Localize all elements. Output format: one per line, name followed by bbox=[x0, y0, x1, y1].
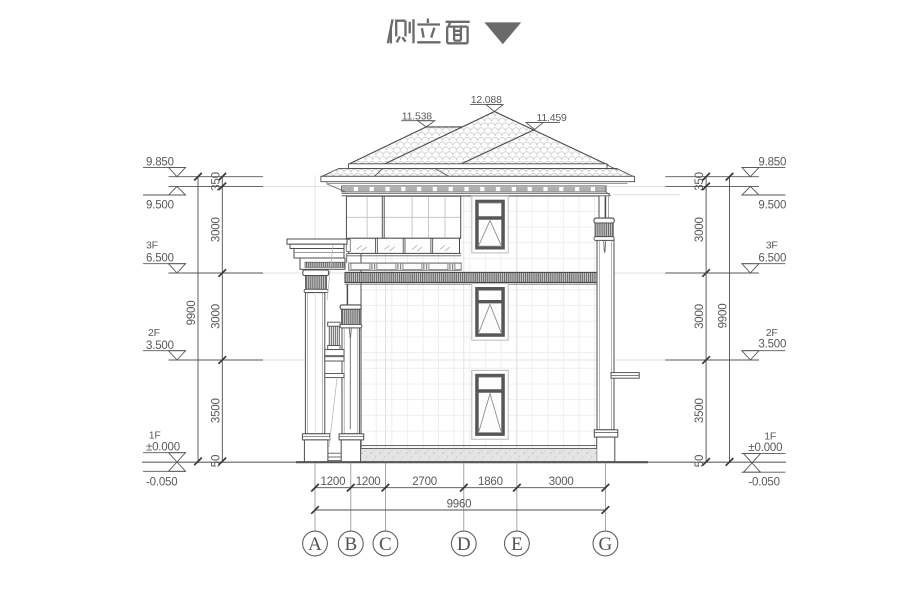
svg-text:2F: 2F bbox=[148, 327, 160, 339]
svg-text:G: G bbox=[599, 534, 613, 555]
svg-text:6.500: 6.500 bbox=[146, 253, 174, 265]
svg-text:1F: 1F bbox=[149, 429, 161, 441]
svg-text:9.850: 9.850 bbox=[758, 157, 786, 169]
svg-text:3000: 3000 bbox=[549, 476, 574, 488]
svg-text:±0.000: ±0.000 bbox=[748, 442, 782, 454]
svg-text:50: 50 bbox=[694, 455, 706, 467]
svg-text:9.500: 9.500 bbox=[146, 200, 174, 212]
svg-text:11.459: 11.459 bbox=[537, 112, 567, 124]
svg-text:C: C bbox=[379, 534, 392, 555]
svg-text:D: D bbox=[457, 534, 471, 555]
svg-text:50: 50 bbox=[210, 455, 222, 467]
svg-text:3000: 3000 bbox=[694, 217, 706, 242]
svg-text:350: 350 bbox=[210, 172, 222, 191]
svg-text:3.500: 3.500 bbox=[146, 340, 174, 352]
svg-text:3500: 3500 bbox=[694, 398, 706, 423]
svg-text:-0.050: -0.050 bbox=[146, 476, 177, 488]
svg-text:9.850: 9.850 bbox=[146, 157, 174, 169]
svg-text:1F: 1F bbox=[764, 430, 776, 442]
svg-text:12.088: 12.088 bbox=[471, 94, 502, 106]
svg-text:9.500: 9.500 bbox=[758, 200, 786, 212]
svg-text:3F: 3F bbox=[146, 240, 158, 252]
svg-text:3000: 3000 bbox=[694, 304, 706, 329]
svg-text:B: B bbox=[344, 534, 357, 555]
svg-text:9960: 9960 bbox=[447, 498, 472, 510]
svg-text:3000: 3000 bbox=[210, 304, 222, 329]
svg-text:3F: 3F bbox=[766, 240, 778, 252]
svg-text:11.538: 11.538 bbox=[402, 110, 432, 122]
svg-text:E: E bbox=[511, 534, 523, 555]
svg-text:-0.050: -0.050 bbox=[748, 477, 779, 489]
svg-text:9900: 9900 bbox=[717, 304, 729, 329]
svg-text:1200: 1200 bbox=[356, 476, 381, 488]
svg-text:2700: 2700 bbox=[412, 476, 437, 488]
svg-text:±0.000: ±0.000 bbox=[146, 441, 180, 453]
svg-text:3.500: 3.500 bbox=[758, 339, 786, 351]
svg-text:350: 350 bbox=[694, 172, 706, 191]
svg-text:6.500: 6.500 bbox=[758, 253, 786, 265]
svg-text:9900: 9900 bbox=[186, 301, 198, 326]
svg-text:2F: 2F bbox=[766, 327, 778, 339]
svg-text:3000: 3000 bbox=[210, 217, 222, 242]
svg-text:1860: 1860 bbox=[478, 476, 503, 488]
svg-text:3500: 3500 bbox=[210, 398, 222, 423]
svg-text:1200: 1200 bbox=[321, 476, 346, 488]
svg-text:A: A bbox=[308, 534, 322, 555]
